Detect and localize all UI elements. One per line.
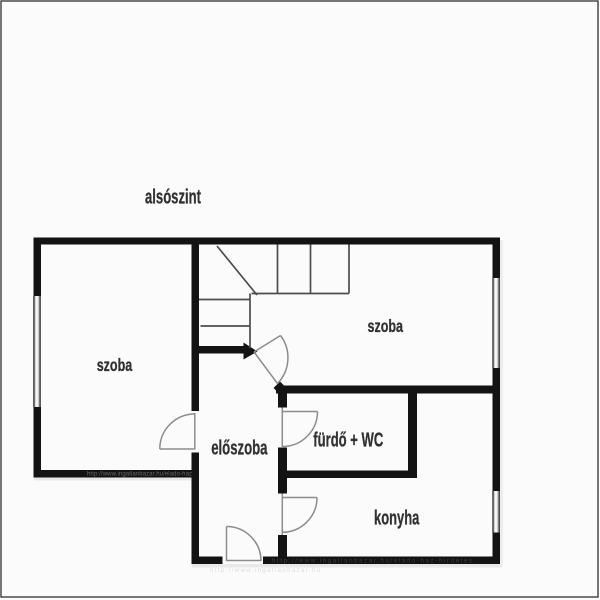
svg-text:fürdő + WC: fürdő + WC xyxy=(313,429,383,452)
svg-text:előszoba: előszoba xyxy=(211,438,268,460)
svg-text:http://www.ingatlanbazar.hu: http://www.ingatlanbazar.hu xyxy=(210,568,320,574)
svg-text:http://www.ingatlanbazar.hu/el: http://www.ingatlanbazar.hu/elado-haz-hi… xyxy=(272,559,472,565)
svg-text:konyha: konyha xyxy=(374,508,420,530)
svg-text:alsószint: alsószint xyxy=(145,186,201,209)
svg-text:szoba: szoba xyxy=(368,316,404,336)
svg-text:szoba: szoba xyxy=(97,355,133,375)
svg-text:http://www.ingatlanbazar.hu/el: http://www.ingatlanbazar.hu/elado-haz xyxy=(87,472,192,478)
